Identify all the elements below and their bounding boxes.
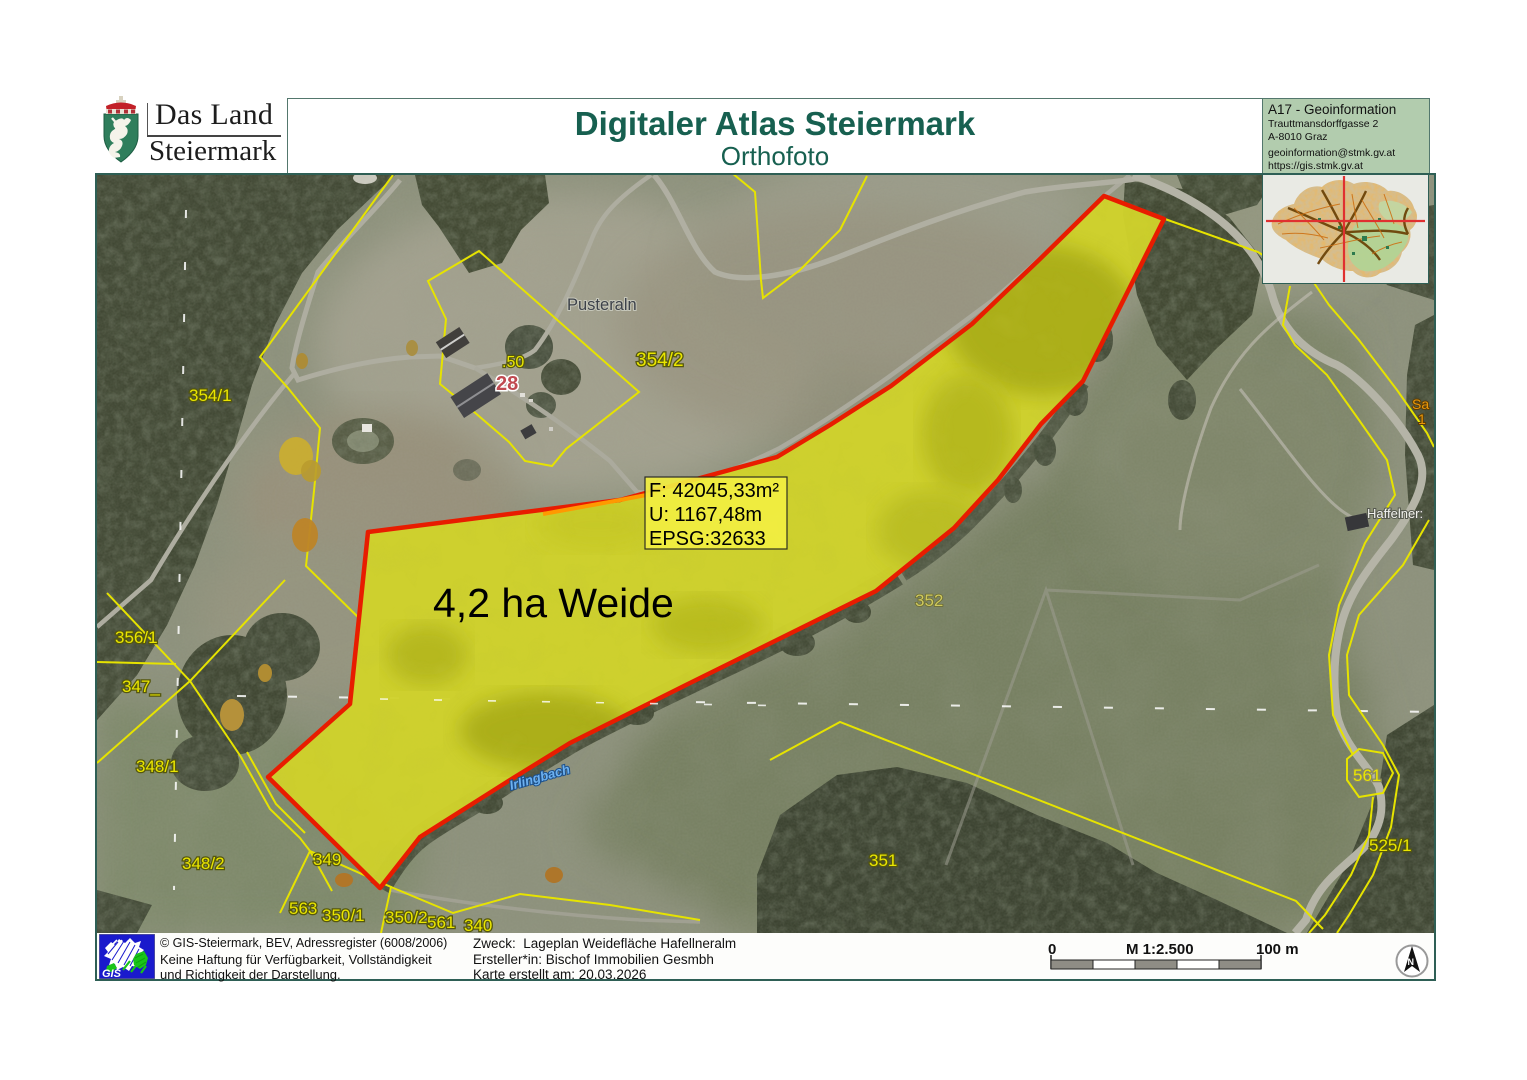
svg-text:347_: 347_ [122,677,160,696]
svg-text:354/2: 354/2 [636,350,684,371]
svg-text:349: 349 [313,850,341,869]
svg-text:561: 561 [427,913,455,932]
svg-text:348/2: 348/2 [182,854,225,873]
svg-text:351: 351 [869,851,897,870]
svg-text:1: 1 [1418,411,1426,427]
svg-text:563: 563 [289,899,317,918]
svg-text:F: 42045,33m²: F: 42045,33m² [649,480,779,502]
svg-text:28: 28 [496,373,518,395]
svg-text:U: 1167,48m: U: 1167,48m [649,504,762,526]
svg-text:4,2 ha Weide: 4,2 ha Weide [433,580,674,626]
svg-text:356/1: 356/1 [115,628,158,647]
svg-text:Sa: Sa [1412,396,1429,412]
svg-text:348/1: 348/1 [136,757,179,776]
svg-text:352: 352 [915,591,943,610]
svg-text:340: 340 [464,916,492,933]
svg-text:350/2: 350/2 [385,908,428,927]
svg-text:N: N [1408,957,1415,967]
svg-text:.50: .50 [502,354,524,371]
svg-text:GIS: GIS [102,968,122,979]
svg-text:Haffelner:: Haffelner: [1367,506,1423,521]
svg-text:354/1: 354/1 [189,386,232,405]
svg-text:Pusteraln: Pusteraln [567,296,637,314]
svg-text:561: 561 [1353,766,1381,785]
svg-text:525/1: 525/1 [1369,836,1412,855]
svg-text:EPSG:32633: EPSG:32633 [649,528,766,550]
svg-text:350/1: 350/1 [322,906,365,925]
